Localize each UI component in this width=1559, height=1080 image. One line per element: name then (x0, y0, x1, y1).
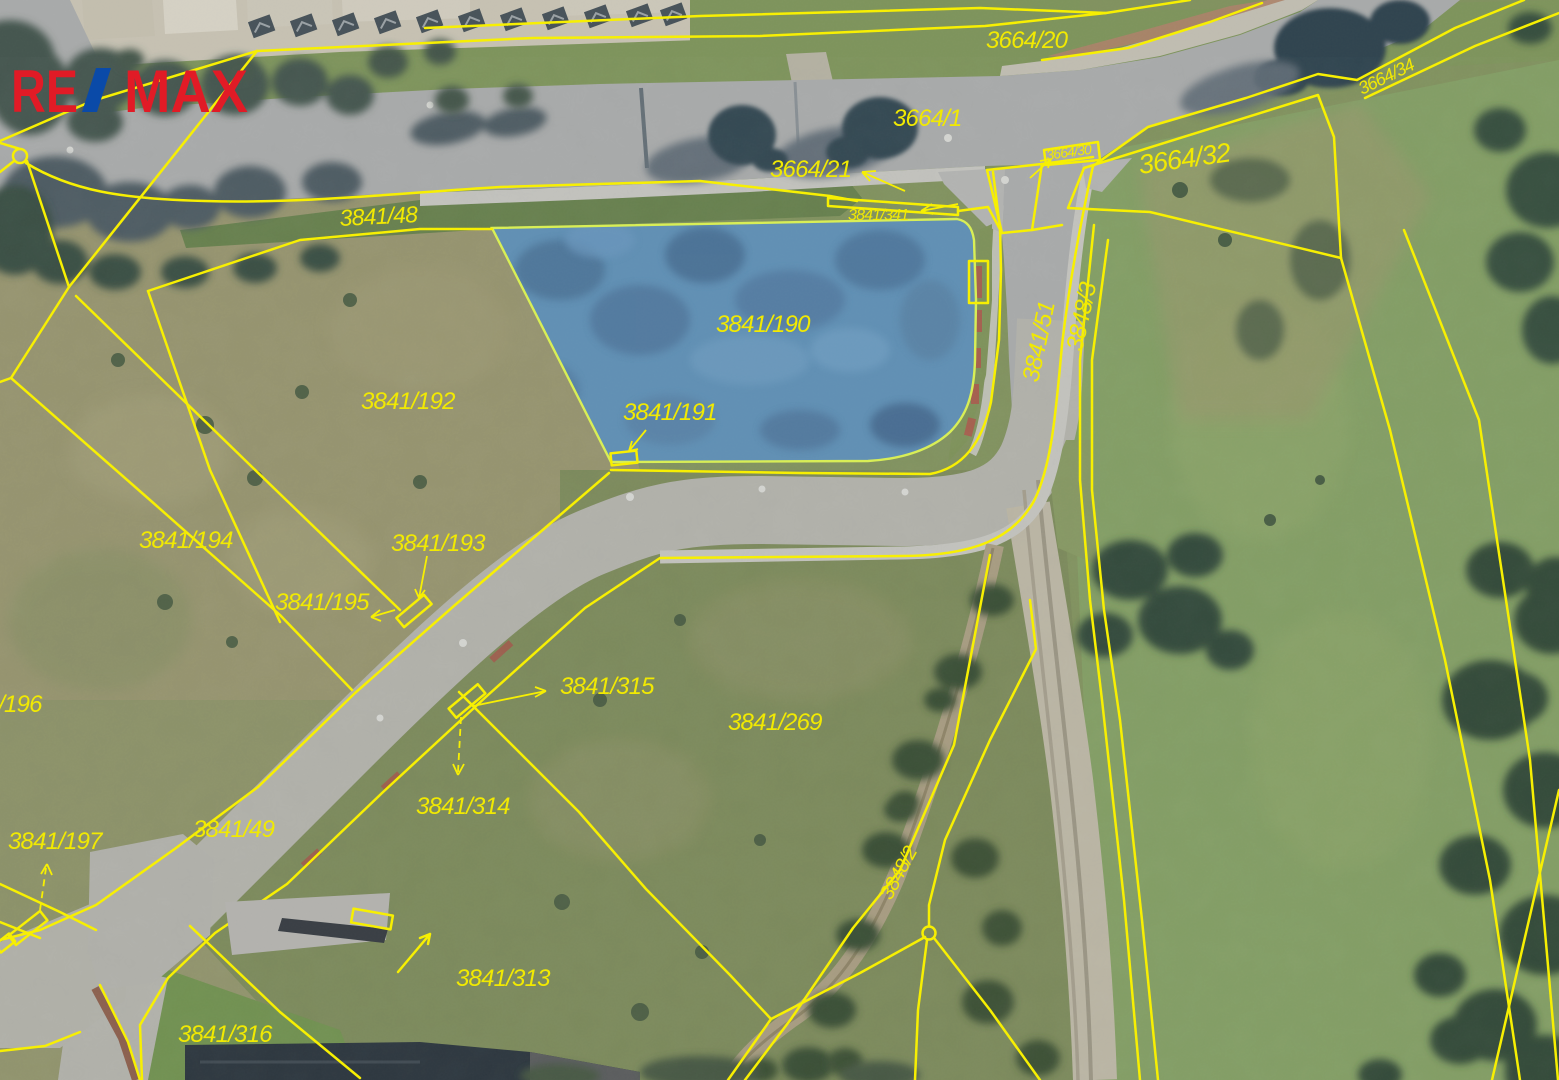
svg-text:MAX: MAX (124, 58, 248, 125)
svg-text:RE: RE (11, 58, 78, 125)
